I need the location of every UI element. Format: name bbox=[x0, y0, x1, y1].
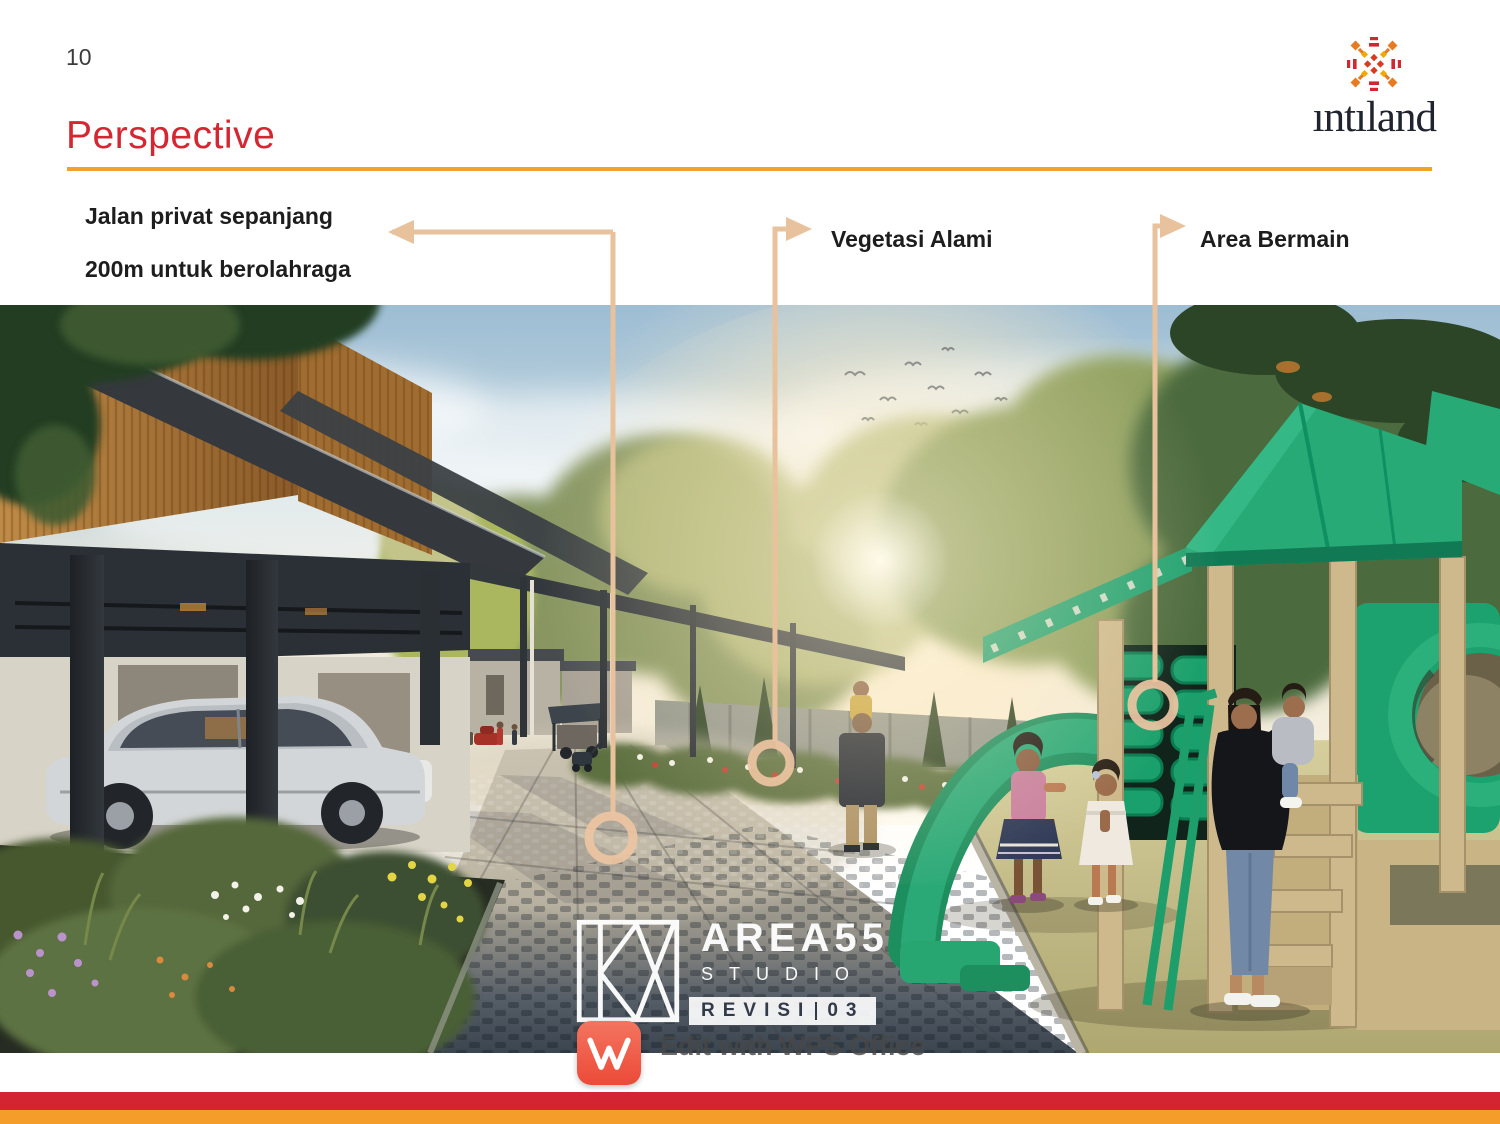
revision-number: 03 bbox=[827, 1000, 864, 1022]
revision-label: REVISI bbox=[701, 1000, 811, 1022]
title-underline bbox=[67, 167, 1432, 171]
page-title: Perspective bbox=[66, 114, 275, 158]
studio-subtitle: STUDIO bbox=[701, 964, 889, 985]
footer-stripe-orange bbox=[0, 1110, 1500, 1124]
intiland-wordmark: ıntıland bbox=[1313, 96, 1436, 139]
sun-glow bbox=[510, 305, 1350, 885]
page-number: 10 bbox=[66, 44, 92, 71]
wps-edit-watermark: Edit with WPS Office bbox=[660, 1031, 926, 1062]
annotation-private-road-line1: Jalan privat sepanjang bbox=[85, 203, 333, 230]
annotation-private-road-line2: 200m untuk berolahraga bbox=[85, 256, 351, 283]
footer-stripe-red bbox=[0, 1092, 1500, 1110]
studio-name: AREA55 bbox=[701, 918, 889, 958]
arrowhead-left-icon bbox=[388, 220, 414, 244]
arrowhead-right-icon bbox=[786, 217, 812, 241]
arrowhead-right2-icon bbox=[1160, 214, 1186, 238]
presentation-slide: 10 Perspective bbox=[0, 0, 1500, 1124]
annotation-playground: Area Bermain bbox=[1200, 226, 1350, 253]
intiland-starburst-icon bbox=[1342, 34, 1406, 94]
revision-divider bbox=[815, 1002, 817, 1020]
area55-logo-icon bbox=[575, 918, 681, 1024]
intiland-logo: ıntıland bbox=[1313, 34, 1436, 139]
revision-badge: REVISI 03 bbox=[689, 997, 876, 1025]
area55-watermark: AREA55 STUDIO REVISI 03 bbox=[575, 918, 889, 1025]
annotation-vegetation: Vegetasi Alami bbox=[831, 226, 993, 253]
tube-tunnel bbox=[1352, 603, 1500, 833]
wps-office-icon[interactable] bbox=[577, 1021, 641, 1085]
